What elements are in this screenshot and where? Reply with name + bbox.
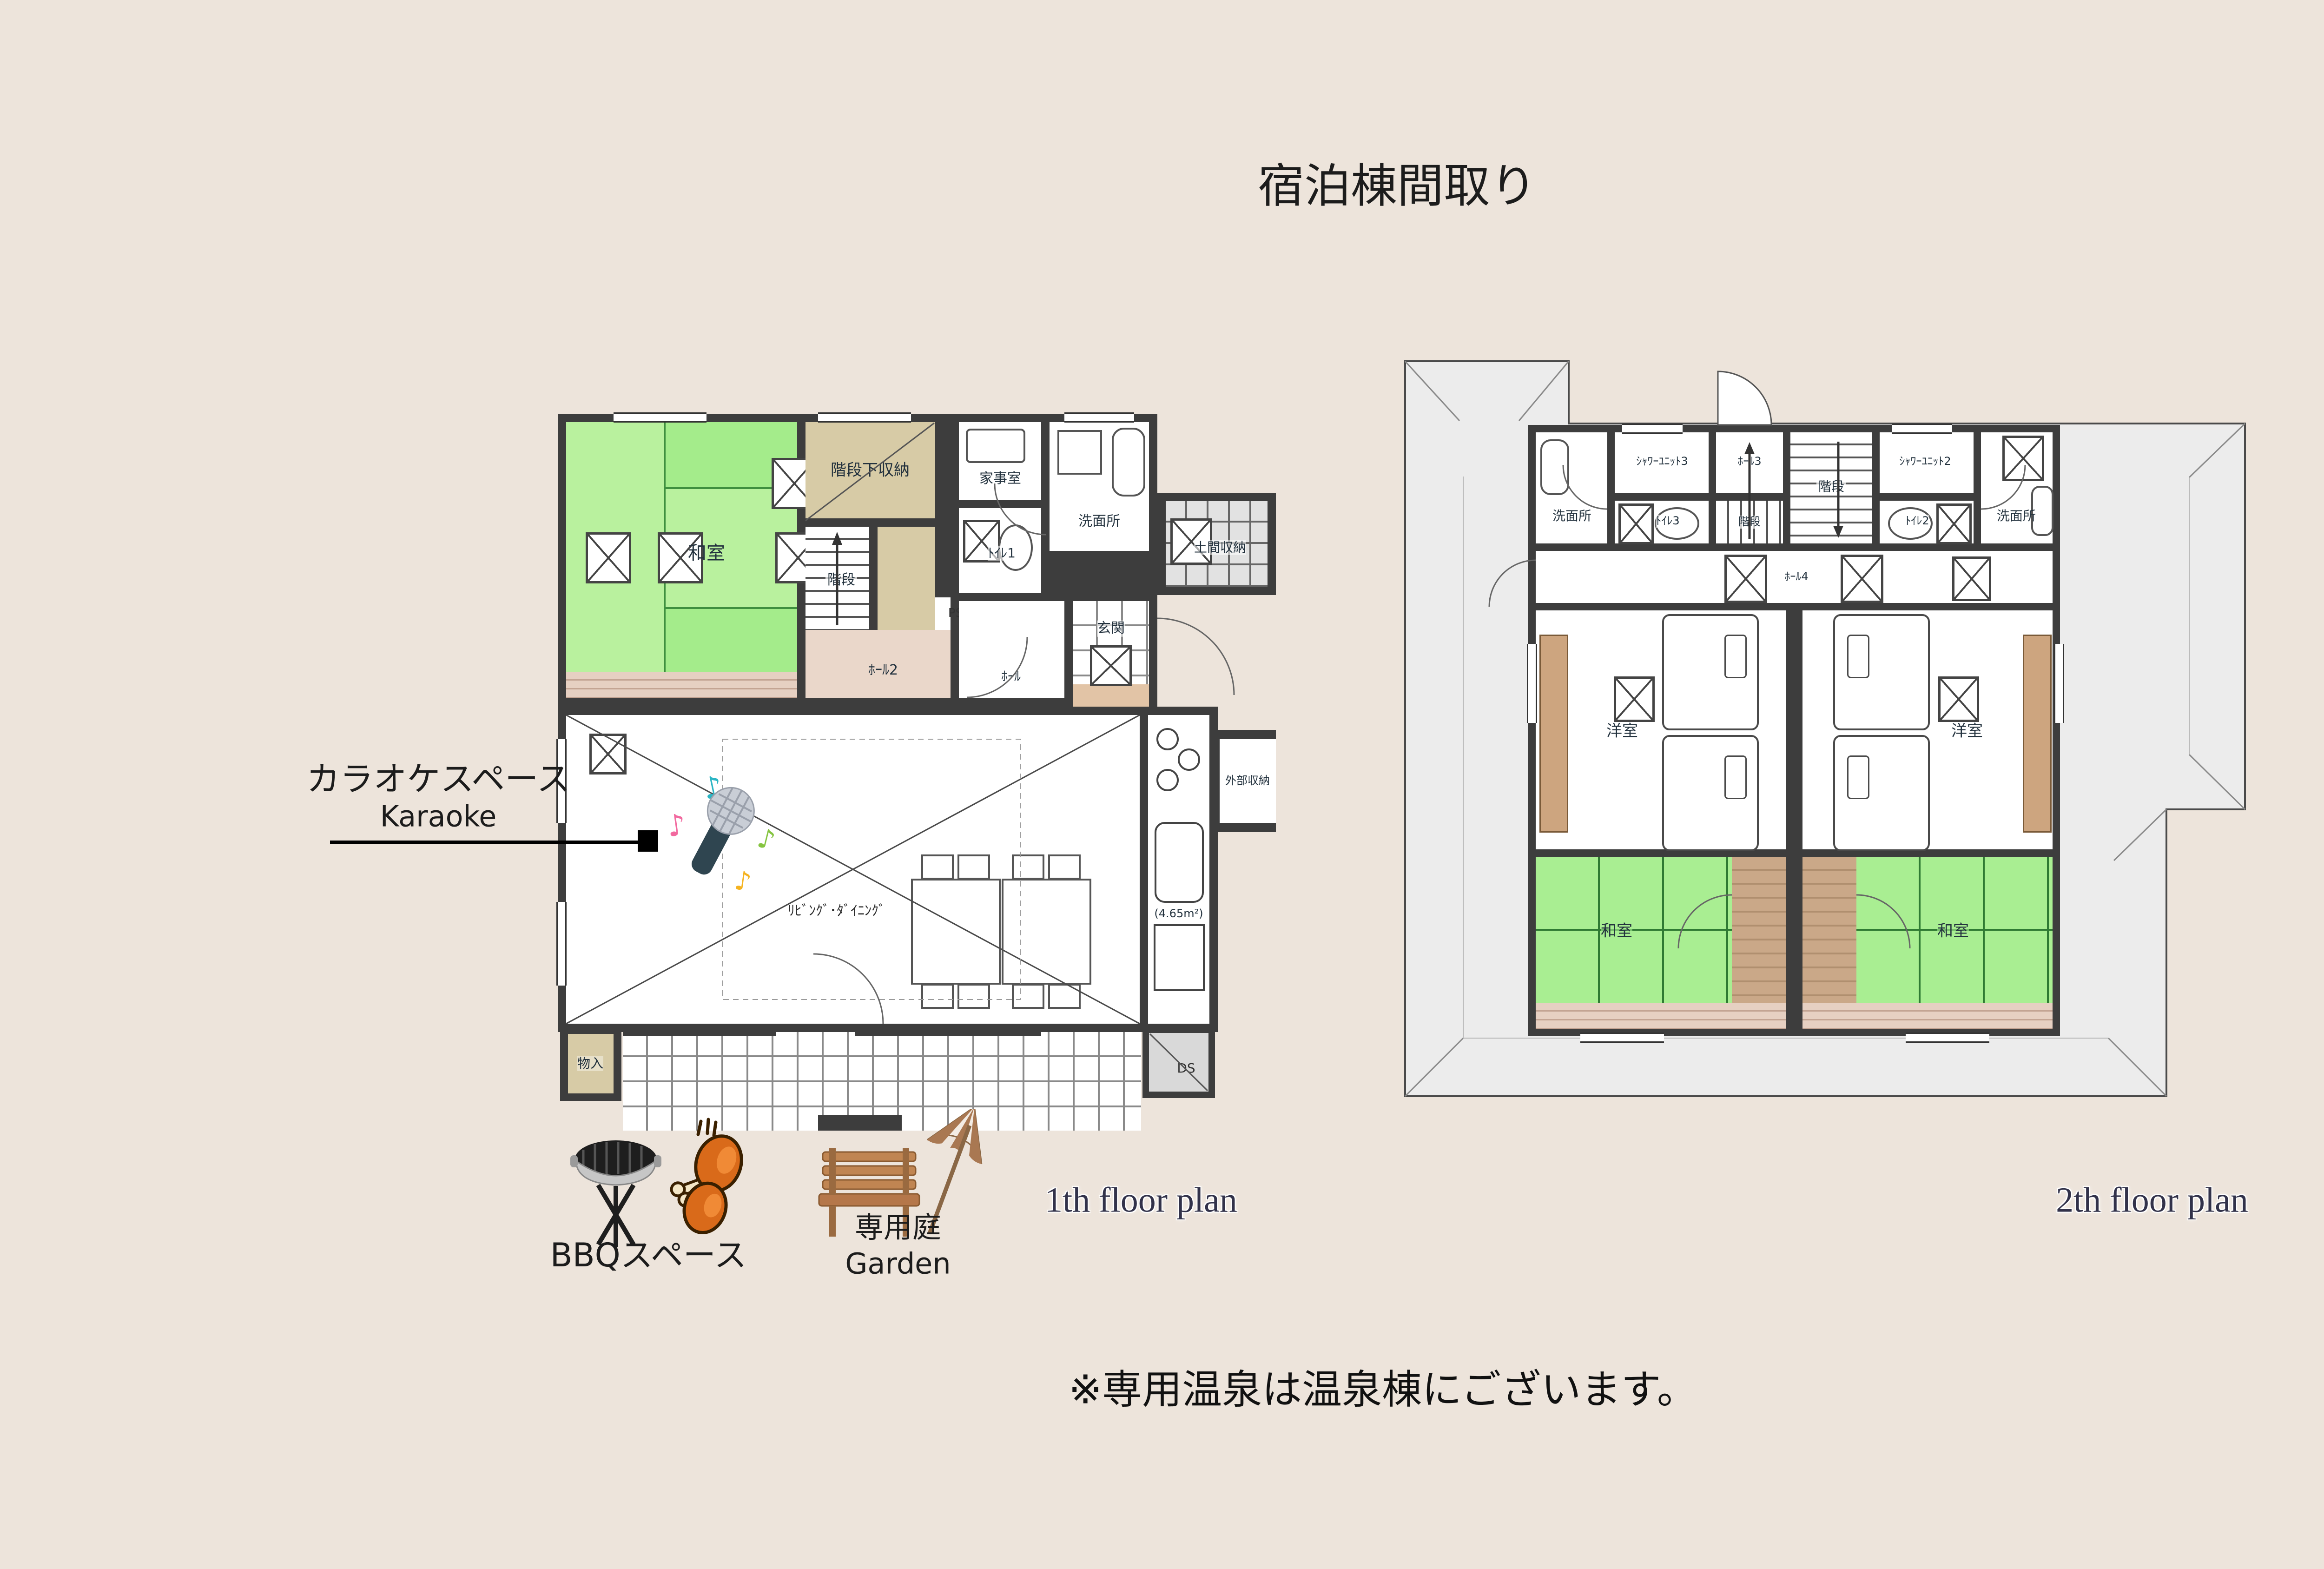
floor2-wood-steps-left [1732, 857, 1786, 1003]
tatami-mat [665, 609, 797, 672]
room-label-shower2: ｼｬﾜｰﾕﾆｯﾄ2 [1899, 455, 1951, 468]
closet-icon [1952, 556, 1991, 601]
chair [957, 854, 990, 880]
room-label-hall2: ﾎｰﾙ2 [868, 662, 898, 679]
bbq-label: BBQスペース [550, 1237, 747, 1274]
bathtub-icon [1540, 439, 1569, 495]
tatami-seam [665, 607, 797, 609]
room-label-senmenjo-right: 洗面所 [1997, 509, 2036, 523]
floor1-kitchen-room [1148, 715, 1209, 1024]
laundry-counter [966, 429, 1025, 463]
closet-icon [1841, 555, 1883, 603]
room-label-toilet2: ﾄｲﾚ2 [1905, 515, 1929, 528]
floorplan-page: 宿泊棟間取り 和室 階段下収納 階段 ﾎｰﾙ2 PS [0, 0, 2324, 1569]
room-label-gaibu: 外部収納 [1225, 775, 1270, 788]
room-label-kaidan-lower: 階段 [1736, 516, 1763, 529]
page-title: 宿泊棟間取り [1258, 159, 1537, 213]
room-label-yoshitsu-right: 洋室 [1951, 722, 1983, 740]
room-label-doma: 土間収納 [1194, 540, 1246, 555]
room-label-hall4: ﾎｰﾙ4 [1784, 570, 1808, 583]
karaoke-label-en: Karaoke [380, 800, 497, 833]
closet-icon [1618, 503, 1654, 544]
room-label-hall3: ﾎｰﾙ3 [1737, 455, 1761, 468]
floor2-engawa-left [1536, 1003, 1786, 1029]
window-icon [556, 902, 567, 986]
dining-table [1002, 879, 1091, 985]
floor1-plan: 和室 階段下収納 階段 ﾎｰﾙ2 PS 家事室 洗面所 ﾄｲﾚ1 土間収納 ﾎｰ… [558, 414, 1283, 1139]
washbasin-icon [1057, 430, 1102, 475]
chair [1012, 854, 1044, 880]
closet-icon [1938, 676, 1979, 722]
closet-icon [1090, 645, 1132, 686]
window-icon [1892, 424, 1952, 434]
terrace-wall [623, 1029, 776, 1036]
floor2-wood-steps-right [1802, 857, 1856, 1003]
bed-icon [1662, 614, 1759, 730]
floor1-engawa [566, 672, 797, 698]
bathtub-icon [1112, 428, 1145, 497]
window-icon [1064, 412, 1134, 423]
floor2-engawa-right [1802, 1003, 2053, 1029]
genkan-step [1073, 684, 1149, 707]
room-label-senmenjo: 洗面所 [1078, 514, 1120, 530]
room-label-genkan: 玄関 [1097, 621, 1125, 637]
room-label-washitsu-left: 和室 [1601, 922, 1632, 940]
closet-icon [2002, 436, 2044, 481]
karaoke-pointer-square [638, 830, 658, 852]
window-icon [1622, 424, 1683, 434]
karaoke-pointer-line [330, 841, 642, 844]
bbq-grill-icon [569, 1137, 662, 1251]
window-icon [614, 412, 706, 423]
terrace-wall [855, 1029, 1041, 1036]
chair [1012, 984, 1044, 1009]
wardrobe-icon [2023, 635, 2052, 833]
floor1-understair-nook [878, 527, 935, 630]
closet-icon [589, 734, 627, 775]
bed-icon [1833, 735, 1930, 851]
garden-label-jp: 専用庭 [855, 1211, 941, 1244]
room-label-kaidan-main: 階段 [1816, 479, 1846, 494]
chair [921, 854, 954, 880]
window-icon [1527, 644, 1537, 723]
room-label-washitsu-right: 和室 [1937, 922, 1969, 940]
closet-icon [586, 532, 631, 583]
window-icon [2054, 644, 2064, 723]
window-icon [818, 412, 911, 423]
chair [1048, 984, 1081, 1009]
room-label-under-stair: 階段下収納 [831, 461, 910, 479]
terrace-step [818, 1115, 902, 1131]
bed-icon [1662, 735, 1759, 851]
garden-label-en: Garden [845, 1247, 951, 1280]
karaoke-label-jp: カラオケスペース [306, 760, 570, 799]
floor2-washitsu-left [1536, 857, 1732, 1003]
room-label-washitsu: 和室 [688, 543, 725, 564]
room-label-living: ﾘﾋﾞﾝｸﾞ･ﾀﾞｲﾆﾝｸﾞ [788, 903, 885, 920]
closet-icon [1614, 676, 1655, 722]
floor2-plan: 洗面所 ｼｬﾜｰﾕﾆｯﾄ3 ﾄｲﾚ3 ﾎｰﾙ3 階段 階段 ｼｬﾜｰﾕﾆｯﾄ2 … [1404, 356, 2247, 1127]
room-label-toilet3: ﾄｲﾚ3 [1656, 515, 1679, 528]
room-label-kaidan: 階段 [825, 571, 857, 589]
floor1-caption: 1th floor plan [1045, 1180, 1237, 1220]
room-label-ds: DS [1177, 1061, 1195, 1076]
window-icon [1906, 1033, 1989, 1043]
hot-spring-note: ※専用温泉は温泉棟にございます。 [1069, 1367, 1697, 1413]
bed-icon [1833, 614, 1930, 730]
chair [921, 984, 954, 1009]
closet-icon [1724, 555, 1767, 603]
room-label-kitchen-area: (4.65m²) [1154, 907, 1203, 920]
wardrobe-icon [1539, 635, 1568, 833]
room-label-toilet1: ﾄｲﾚ1 [988, 546, 1016, 561]
room-label-kitchen: ｷｯﾁﾝ [1167, 890, 1191, 904]
room-label-hall: ﾎｰﾙ [1001, 669, 1021, 684]
floor2-caption: 2th floor plan [2056, 1180, 2248, 1220]
room-label-kajishitsu: 家事室 [979, 471, 1021, 487]
room-label-senmenjo-left: 洗面所 [1552, 509, 1591, 523]
room-label-monoire: 物入 [577, 1056, 603, 1071]
closet-icon [1936, 503, 1972, 544]
dining-table [911, 879, 1001, 985]
room-label-shower3: ｼｬﾜｰﾕﾆｯﾄ3 [1636, 455, 1688, 468]
room-label-yoshitsu-left: 洋室 [1606, 722, 1638, 740]
window-icon [1580, 1033, 1664, 1043]
chair [1048, 854, 1081, 880]
chair [957, 984, 990, 1009]
